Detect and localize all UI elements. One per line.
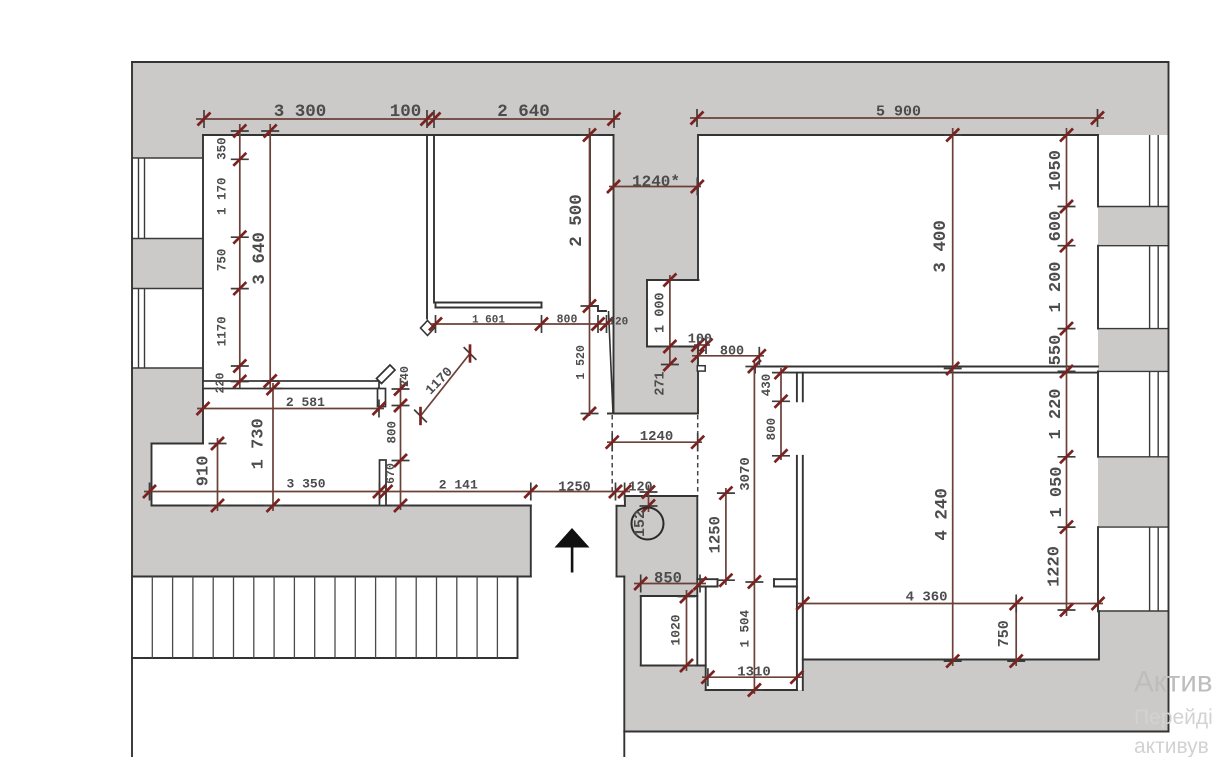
svg-text:3 640: 3 640 (250, 232, 270, 285)
svg-text:1 000: 1 000 (654, 292, 669, 333)
svg-text:800: 800 (765, 418, 779, 441)
svg-text:120: 120 (608, 317, 628, 329)
svg-text:600: 600 (1047, 211, 1066, 242)
svg-text:1 050: 1 050 (1048, 466, 1067, 517)
svg-text:670: 670 (385, 463, 398, 484)
svg-text:100: 100 (688, 333, 712, 348)
svg-text:220: 220 (215, 373, 228, 394)
svg-text:1 601: 1 601 (472, 315, 505, 327)
svg-text:240: 240 (399, 366, 412, 387)
svg-text:3 400: 3 400 (931, 220, 951, 273)
svg-text:2 500: 2 500 (567, 194, 587, 247)
svg-text:1310: 1310 (737, 664, 771, 680)
svg-text:3 350: 3 350 (286, 477, 325, 492)
svg-text:4 240: 4 240 (933, 488, 953, 541)
svg-text:750: 750 (216, 249, 230, 272)
svg-text:1 504: 1 504 (738, 609, 752, 647)
svg-text:1240*: 1240* (632, 173, 680, 191)
svg-text:1250: 1250 (707, 516, 725, 553)
svg-text:1020: 1020 (669, 614, 684, 645)
svg-text:1 730: 1 730 (250, 418, 269, 469)
svg-text:550: 550 (1047, 335, 1066, 366)
svg-text:активув: активув (1134, 735, 1209, 757)
svg-text:350: 350 (216, 137, 230, 160)
svg-text:1170: 1170 (216, 316, 230, 346)
svg-text:1250: 1250 (558, 481, 590, 496)
svg-text:2 640: 2 640 (497, 102, 550, 122)
svg-text:100: 100 (390, 102, 422, 122)
svg-text:800: 800 (386, 421, 400, 444)
svg-text:430: 430 (760, 374, 774, 397)
svg-text:1 220: 1 220 (1047, 388, 1066, 439)
svg-text:2 141: 2 141 (439, 478, 478, 493)
svg-text:910: 910 (195, 456, 214, 487)
svg-text:1 170: 1 170 (216, 177, 230, 215)
svg-text:3 300: 3 300 (274, 102, 327, 122)
svg-text:3070: 3070 (738, 457, 754, 491)
svg-text:1220: 1220 (1046, 546, 1065, 587)
svg-text:1 200: 1 200 (1047, 261, 1066, 312)
svg-text:850: 850 (654, 570, 682, 588)
svg-text:800: 800 (720, 345, 744, 360)
svg-text:Актива: Актива (1134, 666, 1213, 699)
svg-text:271: 271 (654, 371, 669, 395)
svg-text:1050: 1050 (1047, 150, 1066, 191)
svg-text:1240: 1240 (640, 429, 674, 445)
svg-text:4 360: 4 360 (906, 589, 948, 605)
svg-text:Перейді: Перейді (1134, 706, 1213, 729)
svg-text:1 520: 1 520 (575, 345, 588, 380)
svg-text:5 900: 5 900 (876, 104, 921, 121)
svg-text:750: 750 (996, 620, 1013, 647)
svg-text:120: 120 (628, 481, 652, 496)
svg-text:152: 152 (632, 510, 649, 537)
svg-text:2 581: 2 581 (286, 395, 325, 410)
svg-text:800: 800 (557, 314, 578, 327)
